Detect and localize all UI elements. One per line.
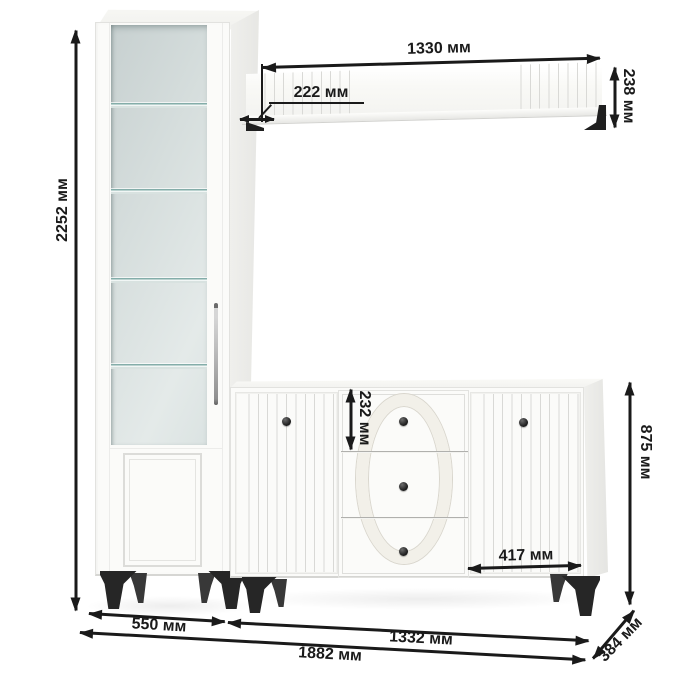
door-seam (222, 23, 223, 575)
sideboard-floor-shadow (245, 588, 595, 610)
drawer-knob (399, 417, 408, 426)
shelf-depth-leader (269, 102, 364, 104)
dimension-label-top-drawer-height: 232 мм (356, 391, 372, 446)
dimension-label-total-width: 1882 мм (298, 645, 362, 664)
glass-shelf (111, 363, 207, 369)
dimension-label-sideboard-width: 1332 мм (389, 629, 453, 648)
glass-shelf (111, 188, 207, 194)
cabinet-side-face (228, 10, 259, 388)
drawer-divider (341, 451, 468, 453)
dimension-label-right-door-width: 417 мм (498, 547, 553, 565)
dimension-line-top-drawer-height (350, 390, 353, 450)
leg-back (198, 573, 218, 603)
door-knob (282, 417, 291, 426)
dimension-line-cabinet-height (75, 31, 78, 611)
door-knob (519, 418, 528, 427)
sideboard-left-door (235, 392, 338, 574)
dimension-line-sideboard-height (629, 383, 632, 605)
sideboard-right-leg (548, 574, 606, 616)
door-seam (109, 23, 110, 575)
furniture-dimension-diagram: 2252 мм 1330 мм 222 мм 238 мм 232 мм 875… (0, 0, 700, 691)
dimension-label-cabinet-width: 550 мм (131, 616, 187, 635)
glass-shelf (111, 277, 207, 283)
leg-back (268, 579, 287, 607)
sideboard-left-leg (242, 577, 288, 613)
dimension-label-shelf-height: 238 мм (620, 69, 636, 124)
shelf-extension-line (261, 64, 263, 122)
leg-back (127, 573, 147, 603)
dimension-line-shelf-depth (240, 118, 274, 121)
glass-shelf (111, 102, 207, 108)
door-handle (214, 303, 218, 405)
glass-door (111, 25, 207, 445)
dimension-label-cabinet-height: 2252 мм (55, 178, 71, 242)
dimension-label-sideboard-height: 875 мм (637, 425, 653, 480)
sideboard-side-face (584, 379, 608, 578)
leg-front (560, 576, 600, 616)
door-seam (109, 448, 223, 449)
cabinet-lower-door-panel (123, 453, 202, 567)
dimension-label-shelf-width: 1330 мм (407, 40, 471, 58)
drawer-knob (399, 482, 408, 491)
cabinet-front (95, 22, 230, 576)
dimension-line-shelf-height (614, 68, 617, 128)
dimension-label-shelf-depth: 222 мм (294, 85, 349, 101)
drawer-divider (341, 517, 468, 519)
cabinet-left-leg (100, 571, 148, 609)
drawer-knob (399, 547, 408, 556)
